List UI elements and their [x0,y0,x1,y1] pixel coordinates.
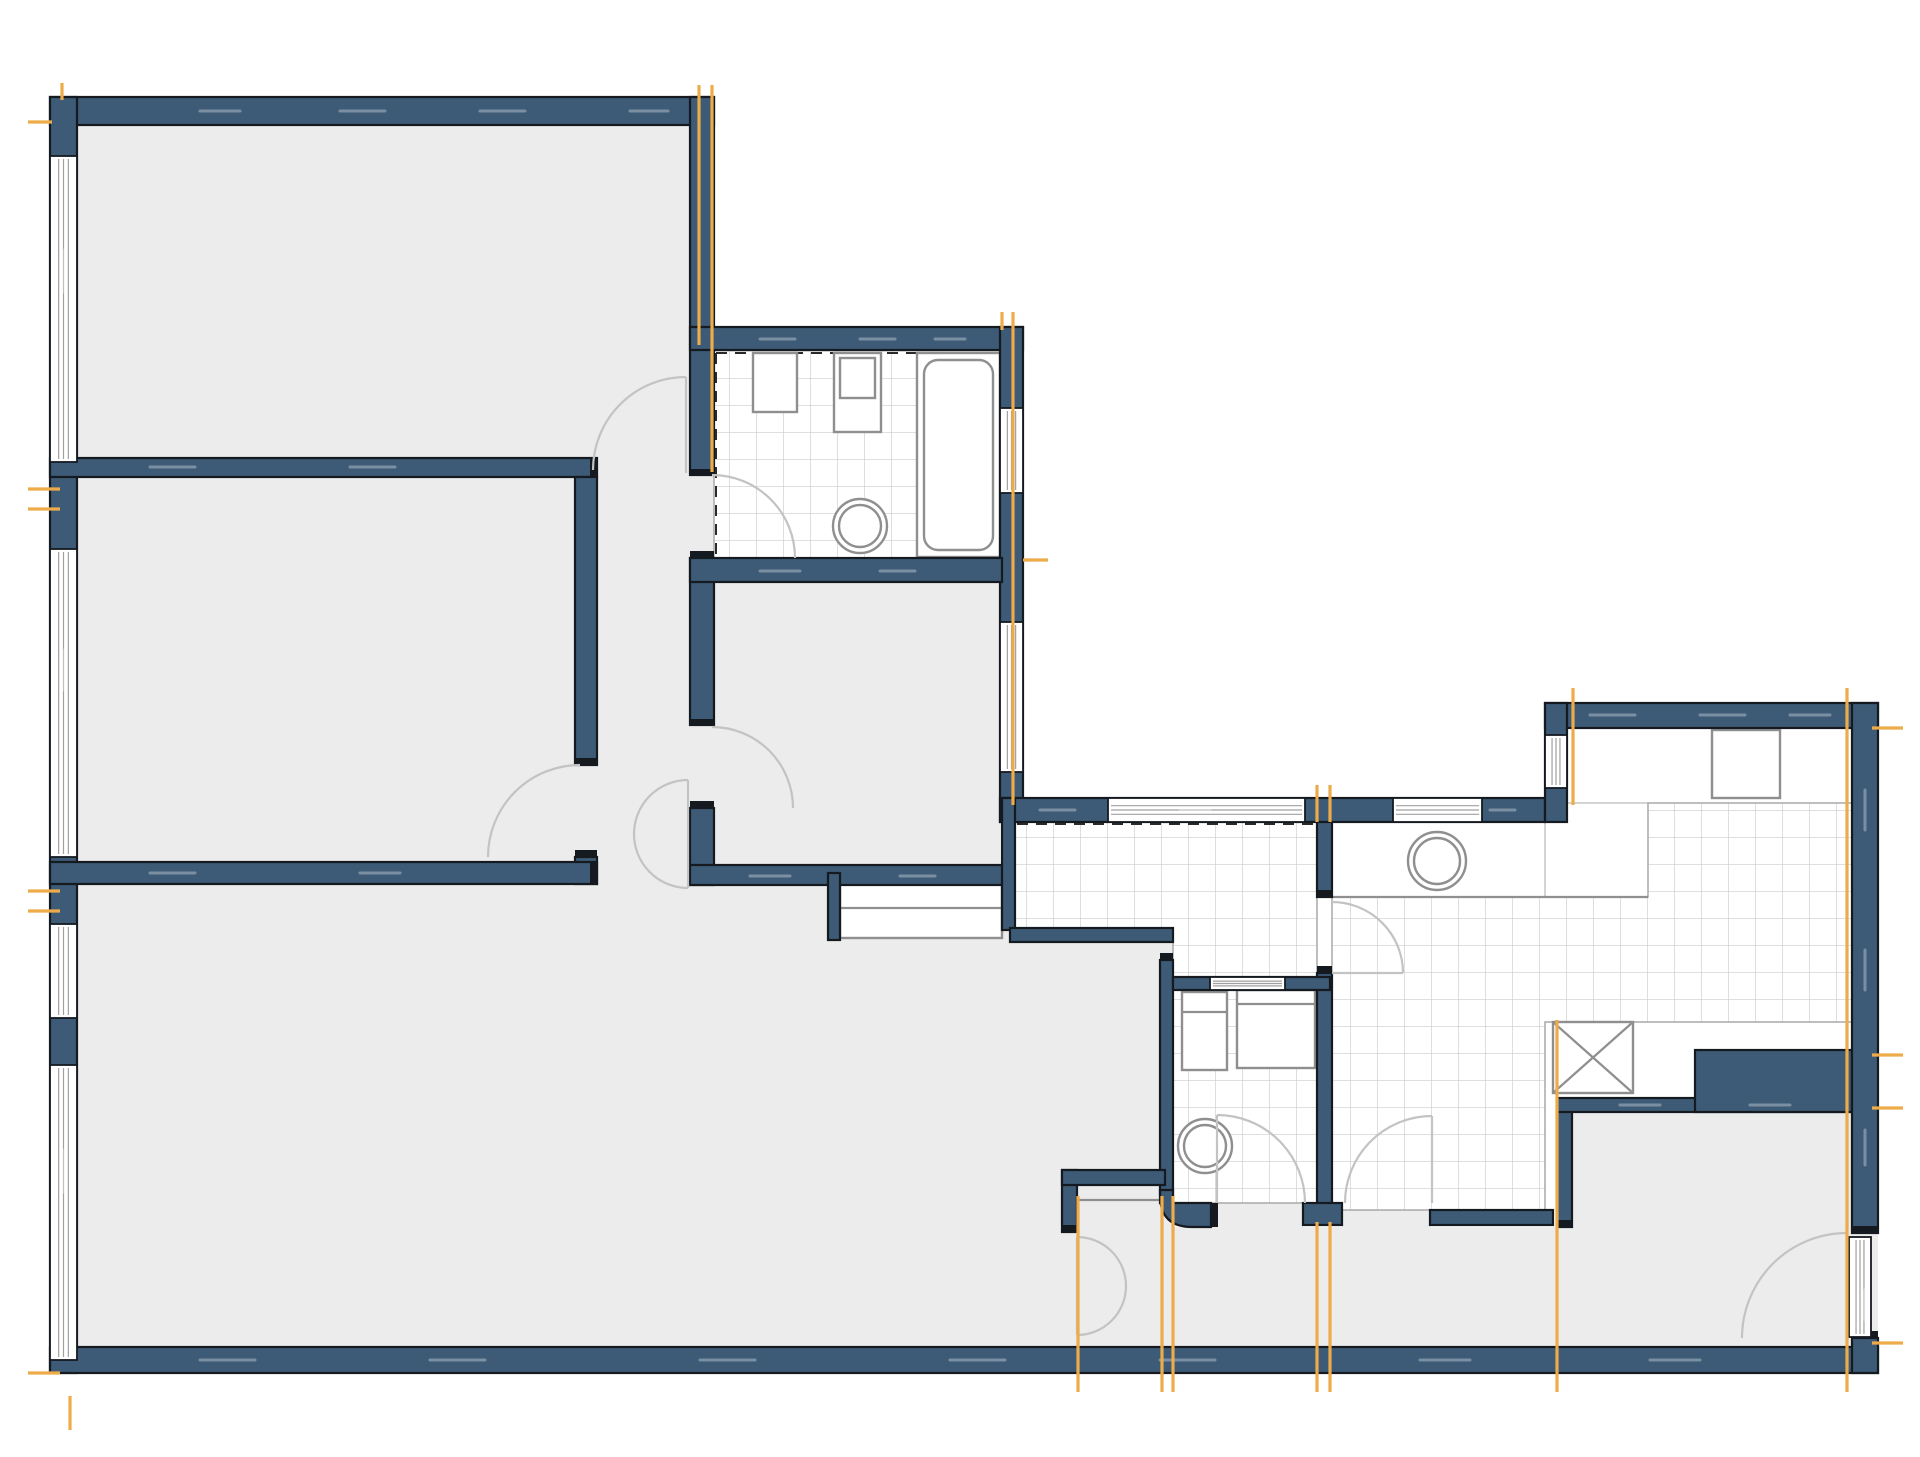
wall-sill [1430,1210,1553,1225]
wc-toilet-shape [1184,1125,1226,1167]
wc-washing-machine-shape [1237,990,1315,1068]
wc-washing-machine [1237,990,1315,1068]
kitchen-stove-shape [1712,730,1780,798]
doorway-bathroom [690,475,714,558]
window-wc-slot [1210,977,1285,990]
doorway-center-room [690,725,714,808]
shower-room-sink [1408,832,1466,890]
bathroom-sink-1-shape [753,353,797,412]
wall-cap-11 [1211,1203,1218,1227]
wall-cap-12 [1557,1220,1572,1227]
window-left-4 [50,1065,77,1360]
wall-cap-13 [1852,1226,1878,1233]
window-kitchen-left [1545,735,1567,788]
wall-cap-5 [590,862,597,884]
wall-divider-room2-bottom [50,862,597,884]
corridor-floor [1077,1227,1572,1347]
wall-cap-9 [1317,890,1332,897]
entry-room-floor [1572,1112,1852,1347]
room-mid-left-floor [77,477,575,862]
wall-cap-3 [690,801,714,808]
wall-bathroom-top [690,327,1023,350]
doorway-room-mid-left [575,765,597,857]
shaft-crossed-box [1553,1022,1633,1093]
wall-cap-15 [1160,953,1173,960]
room-top-left-floor [77,125,690,458]
window-left-2 [50,549,77,857]
wall-entry-west [1557,1102,1572,1227]
wall-wc-west [1160,960,1173,1203]
wall-jut [1062,1170,1165,1185]
window-left-3 [50,924,77,1018]
wall-cap-1 [690,551,714,558]
bathtub-shape [924,360,993,550]
wall-cap-2 [690,719,714,726]
wall-room2-east [575,477,597,765]
wall-closet-stub [828,873,840,940]
hallway-floor [597,458,690,888]
floor-plan-page [0,0,1920,1457]
bathroom-sink-2 [834,353,881,432]
kitchen-upper-band [1567,728,1852,803]
closet-shelf [840,878,1002,938]
wc-cabinet-shape [1182,992,1227,1070]
wall-cap-7 [575,850,597,857]
wc-toilet [1178,1119,1232,1173]
wall-laundry-west-turn [1010,928,1173,942]
wall-cap-10 [1317,966,1332,973]
entry-door-leaf [1849,1237,1871,1337]
bathroom-sink-2-shape [840,358,875,398]
wall-niche-block [1695,1050,1852,1112]
wall-divider-rooms-1-2 [50,458,597,477]
doorway-wc [1211,1203,1303,1227]
wc-cabinet [1182,992,1227,1070]
floor-plan-canvas [0,0,1920,1457]
room-bottom-left-floor [77,884,1062,1347]
bathroom-toilet-shape [839,505,881,547]
kitchen-stove [1712,730,1780,798]
bathroom-sink-1 [753,353,797,412]
wall-cap-8 [1062,1225,1077,1232]
shower-room-sink-shape [1414,838,1460,884]
room-center-floor [714,582,1000,865]
wall-wc-bottom-stub [1303,1203,1342,1225]
wall-divider-upper [1317,822,1332,897]
wall-bathroom-bottom [690,558,1002,582]
wall-wc-divider-east [1317,973,1332,1213]
bathtub [917,353,1000,557]
wall-center-room-bottom [690,865,1007,885]
bathroom-toilet [833,499,887,553]
wall-laundry-west [1002,798,1015,930]
window-laundry-2 [1393,798,1482,822]
window-left-1 [50,156,77,462]
